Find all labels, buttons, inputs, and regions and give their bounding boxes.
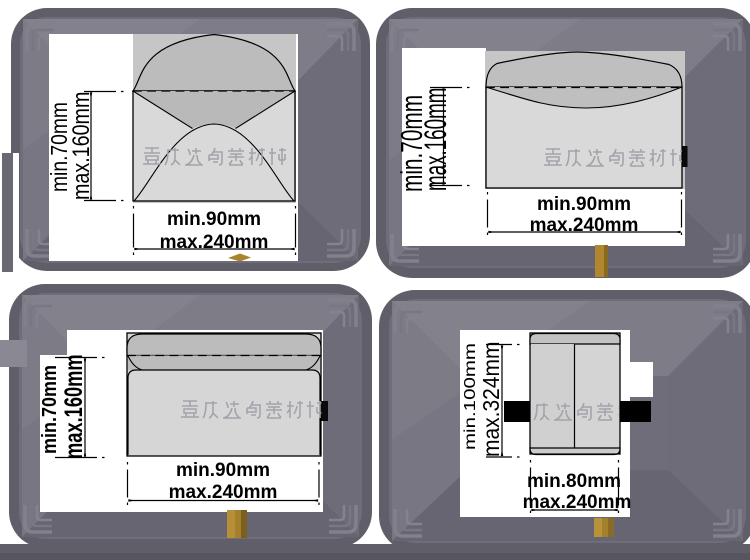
svg-text:max.160mm: max.160mm — [67, 92, 94, 200]
svg-text:max.240mm: max.240mm — [523, 492, 632, 513]
svg-text:max.160mm: max.160mm — [59, 354, 87, 459]
svg-text:min.90mm: min.90mm — [537, 194, 631, 215]
svg-text:min.90mm: min.90mm — [167, 209, 261, 230]
svg-text:min.100mm: min.100mm — [461, 343, 478, 450]
svg-text:max.240mm: max.240mm — [530, 215, 639, 236]
svg-text:max.240mm: max.240mm — [160, 232, 269, 253]
svg-text:min.90mm: min.90mm — [176, 460, 270, 481]
svg-text:max.240mm: max.240mm — [169, 482, 278, 503]
svg-text:max.324mm: max.324mm — [478, 342, 504, 457]
svg-text:max.160mm: max.160mm — [419, 88, 453, 191]
svg-text:min.80mm: min.80mm — [527, 471, 621, 492]
svg-text:min.70mm: min.70mm — [38, 365, 61, 454]
